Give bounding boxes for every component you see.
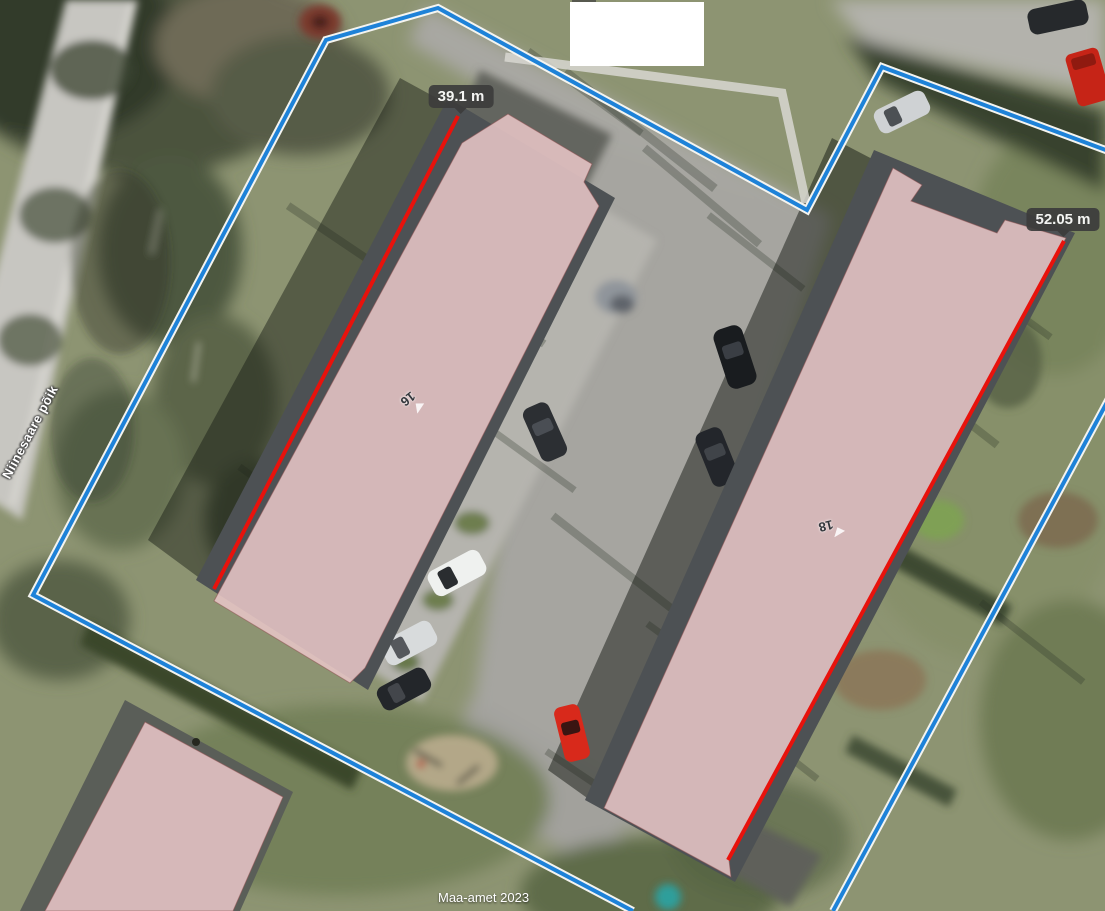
- blank-overlay-box: [570, 2, 704, 66]
- map-attribution: Maa-amet 2023: [438, 890, 529, 905]
- roof-vent: [192, 738, 200, 746]
- measurement-badge-52-05[interactable]: 52.05 m: [1026, 208, 1099, 231]
- aerial-imagery: [0, 0, 1105, 911]
- measurement-badge-39-1[interactable]: 39.1 m: [429, 85, 494, 108]
- map-canvas[interactable]: Niinesaare põik 16 18 39.1 m 52.05 m Maa…: [0, 0, 1105, 911]
